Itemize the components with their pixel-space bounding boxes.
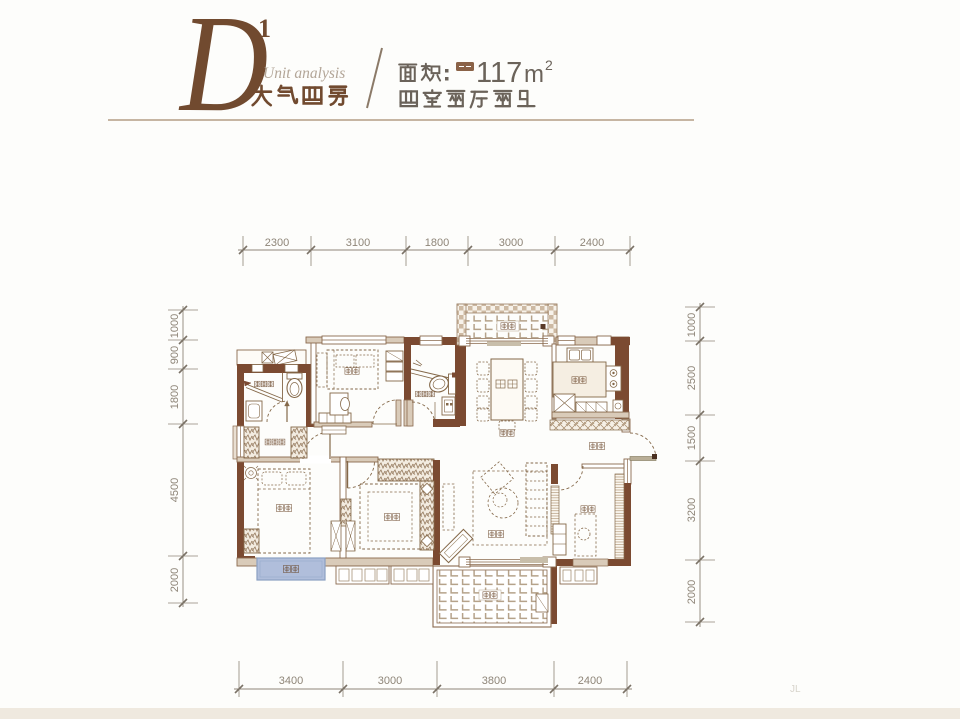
svg-text:900: 900 [169,346,181,364]
svg-text:2400: 2400 [580,237,604,249]
svg-text:m: m [524,61,544,88]
svg-text:117: 117 [476,57,522,89]
svg-text:1800: 1800 [425,237,449,249]
svg-text:3000: 3000 [499,237,523,249]
svg-text:2000: 2000 [686,580,698,604]
svg-text:3100: 3100 [346,237,370,249]
svg-text:2400: 2400 [578,675,602,687]
svg-text:4500: 4500 [169,478,181,502]
svg-text:1000: 1000 [686,313,698,337]
svg-text:1500: 1500 [686,426,698,450]
svg-text:2: 2 [545,57,553,73]
svg-text:JL: JL [790,684,801,695]
svg-text:2300: 2300 [265,237,289,249]
svg-text:3800: 3800 [482,675,506,687]
svg-text:3200: 3200 [686,498,698,522]
svg-text:3400: 3400 [279,675,303,687]
svg-text:3000: 3000 [378,675,402,687]
svg-text:1800: 1800 [169,385,181,409]
svg-text:2000: 2000 [169,568,181,592]
svg-text:1000: 1000 [169,314,181,338]
svg-text:2500: 2500 [686,366,698,390]
